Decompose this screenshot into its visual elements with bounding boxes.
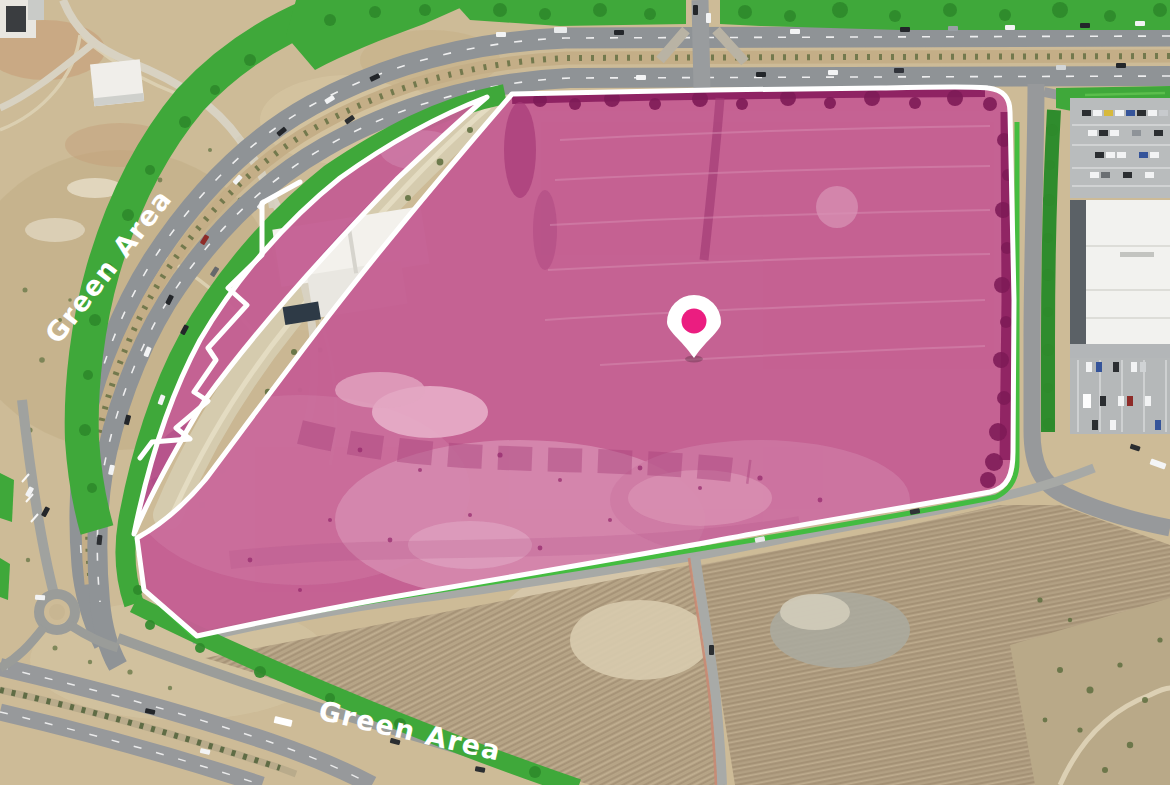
aerial-map-canvas: Green Area Green Area [0, 0, 1170, 785]
aerial-map: Green Area Green Area [0, 0, 1170, 785]
